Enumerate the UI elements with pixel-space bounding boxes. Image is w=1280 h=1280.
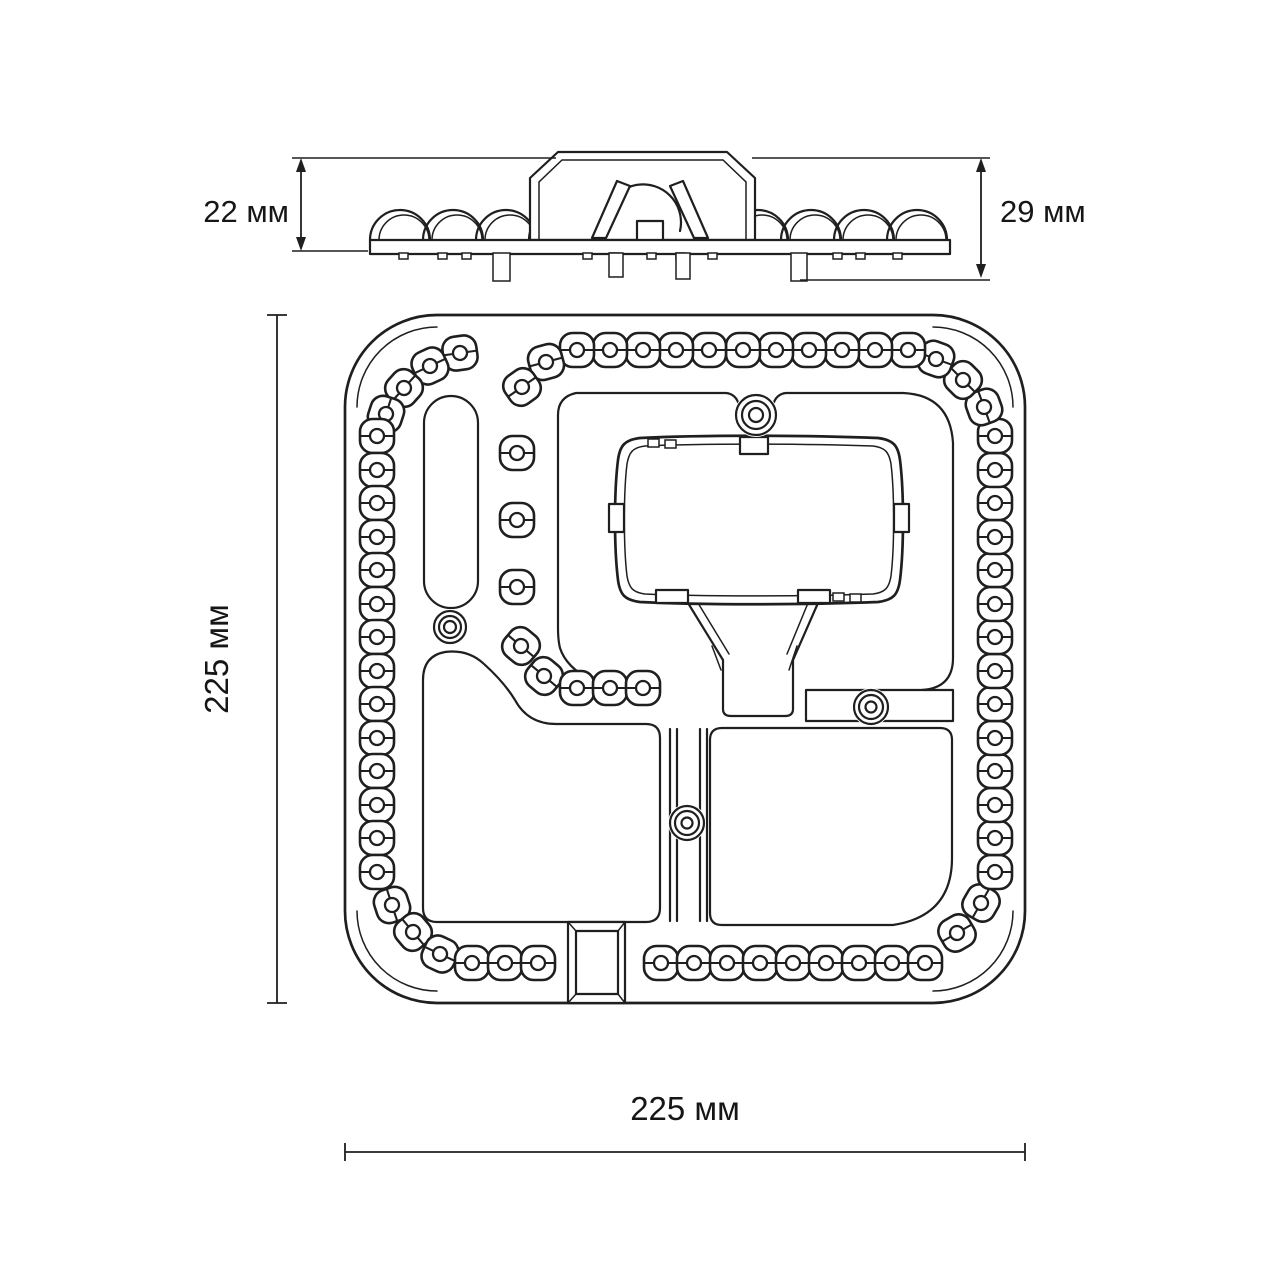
plate-foot bbox=[893, 253, 902, 259]
led-lens bbox=[500, 436, 534, 470]
led-lens bbox=[360, 587, 394, 621]
bracket-clip bbox=[833, 593, 844, 601]
main-width-label: 225 мм bbox=[630, 1090, 740, 1127]
plate-foot bbox=[833, 253, 842, 259]
led-lens bbox=[978, 855, 1012, 889]
led-lens bbox=[978, 654, 1012, 688]
led-lens bbox=[360, 520, 394, 554]
arrow-down bbox=[296, 237, 306, 251]
led-lens bbox=[626, 671, 660, 705]
led-lens bbox=[842, 946, 876, 980]
led-lens bbox=[593, 671, 627, 705]
bracket-tab-top bbox=[740, 437, 768, 454]
mount-pin bbox=[791, 253, 807, 281]
led-lens bbox=[360, 721, 394, 755]
led-lens bbox=[360, 453, 394, 487]
led-lens bbox=[692, 333, 726, 367]
arrow-up bbox=[976, 158, 986, 172]
led-lens bbox=[360, 654, 394, 688]
led-lens bbox=[360, 687, 394, 721]
mount-pins bbox=[399, 253, 902, 281]
screw-hole bbox=[432, 609, 468, 645]
led-lens bbox=[978, 788, 1012, 822]
led-lens bbox=[500, 503, 534, 537]
led-lens bbox=[978, 620, 1012, 654]
led-lens bbox=[360, 754, 394, 788]
mount-pin bbox=[609, 253, 623, 277]
arrow-up bbox=[296, 158, 306, 172]
led-lens bbox=[360, 486, 394, 520]
side-view: 22 мм 29 мм bbox=[203, 152, 1085, 281]
led-lens bbox=[360, 788, 394, 822]
module-outline bbox=[345, 315, 1025, 1003]
bracket-tab-bottom-left bbox=[656, 590, 688, 603]
led-lens bbox=[488, 946, 522, 980]
led-lens bbox=[360, 855, 394, 889]
driver-bracket bbox=[609, 436, 909, 605]
plate-foot bbox=[583, 253, 592, 259]
led-lens bbox=[710, 946, 744, 980]
screw-hole bbox=[734, 393, 778, 437]
side-height-right-label: 29 мм bbox=[1000, 194, 1086, 229]
connector-cutout bbox=[568, 922, 625, 1003]
bracket-clip bbox=[850, 594, 861, 602]
plate-foot bbox=[856, 253, 865, 259]
led-lens bbox=[978, 453, 1012, 487]
plate-foot bbox=[647, 253, 656, 259]
led-lens bbox=[759, 333, 793, 367]
led-lens bbox=[776, 946, 810, 980]
led-lens bbox=[726, 333, 760, 367]
led-lens bbox=[978, 520, 1012, 554]
bracket-tab-left bbox=[609, 504, 624, 532]
screw-hole bbox=[668, 804, 706, 842]
mount-pin bbox=[493, 253, 510, 281]
main-view bbox=[345, 315, 1025, 1003]
bracket-tab-bottom-right bbox=[798, 590, 830, 603]
bracket-outer bbox=[615, 436, 903, 605]
led-lens bbox=[360, 419, 394, 453]
led-module-technical-drawing: 22 мм 29 мм bbox=[0, 0, 1280, 1280]
bracket-base-block bbox=[637, 221, 663, 241]
led-lens bbox=[891, 333, 925, 367]
led-lens bbox=[644, 946, 678, 980]
led-lens bbox=[360, 620, 394, 654]
led-lens bbox=[677, 946, 711, 980]
led-lens bbox=[858, 333, 892, 367]
led-lens bbox=[978, 587, 1012, 621]
mount-pin bbox=[676, 253, 690, 279]
bracket-clip bbox=[648, 439, 659, 447]
led-lens bbox=[908, 946, 942, 980]
led-lens bbox=[360, 553, 394, 587]
led-lens bbox=[560, 671, 594, 705]
plate-foot bbox=[708, 253, 717, 259]
base-plate-profile bbox=[370, 240, 950, 254]
led-lens bbox=[978, 553, 1012, 587]
bracket-clip bbox=[665, 440, 676, 448]
led-lens bbox=[743, 946, 777, 980]
led-lens bbox=[825, 333, 859, 367]
led-lens bbox=[978, 721, 1012, 755]
plate-foot bbox=[438, 253, 447, 259]
led-lens bbox=[560, 333, 594, 367]
led-lens bbox=[659, 333, 693, 367]
led-lens bbox=[978, 821, 1012, 855]
screw-hole bbox=[852, 688, 890, 726]
led-lens bbox=[792, 333, 826, 367]
arrow-down bbox=[976, 264, 986, 278]
plate-foot bbox=[462, 253, 471, 259]
led-lens bbox=[455, 946, 489, 980]
led-lens bbox=[809, 946, 843, 980]
led-lens bbox=[875, 946, 909, 980]
led-lens bbox=[360, 821, 394, 855]
bracket-tab-right bbox=[894, 504, 909, 532]
plate-foot bbox=[399, 253, 408, 259]
led-lens bbox=[978, 754, 1012, 788]
led-lens bbox=[626, 333, 660, 367]
led-lens bbox=[500, 570, 534, 604]
led-lens bbox=[978, 687, 1012, 721]
led-lens bbox=[521, 946, 555, 980]
led-lens bbox=[978, 486, 1012, 520]
side-height-left-label: 22 мм bbox=[203, 194, 289, 229]
drawing-page: 22 мм 29 мм bbox=[0, 0, 1280, 1280]
main-height-label: 225 мм bbox=[198, 604, 235, 714]
led-lens bbox=[593, 333, 627, 367]
